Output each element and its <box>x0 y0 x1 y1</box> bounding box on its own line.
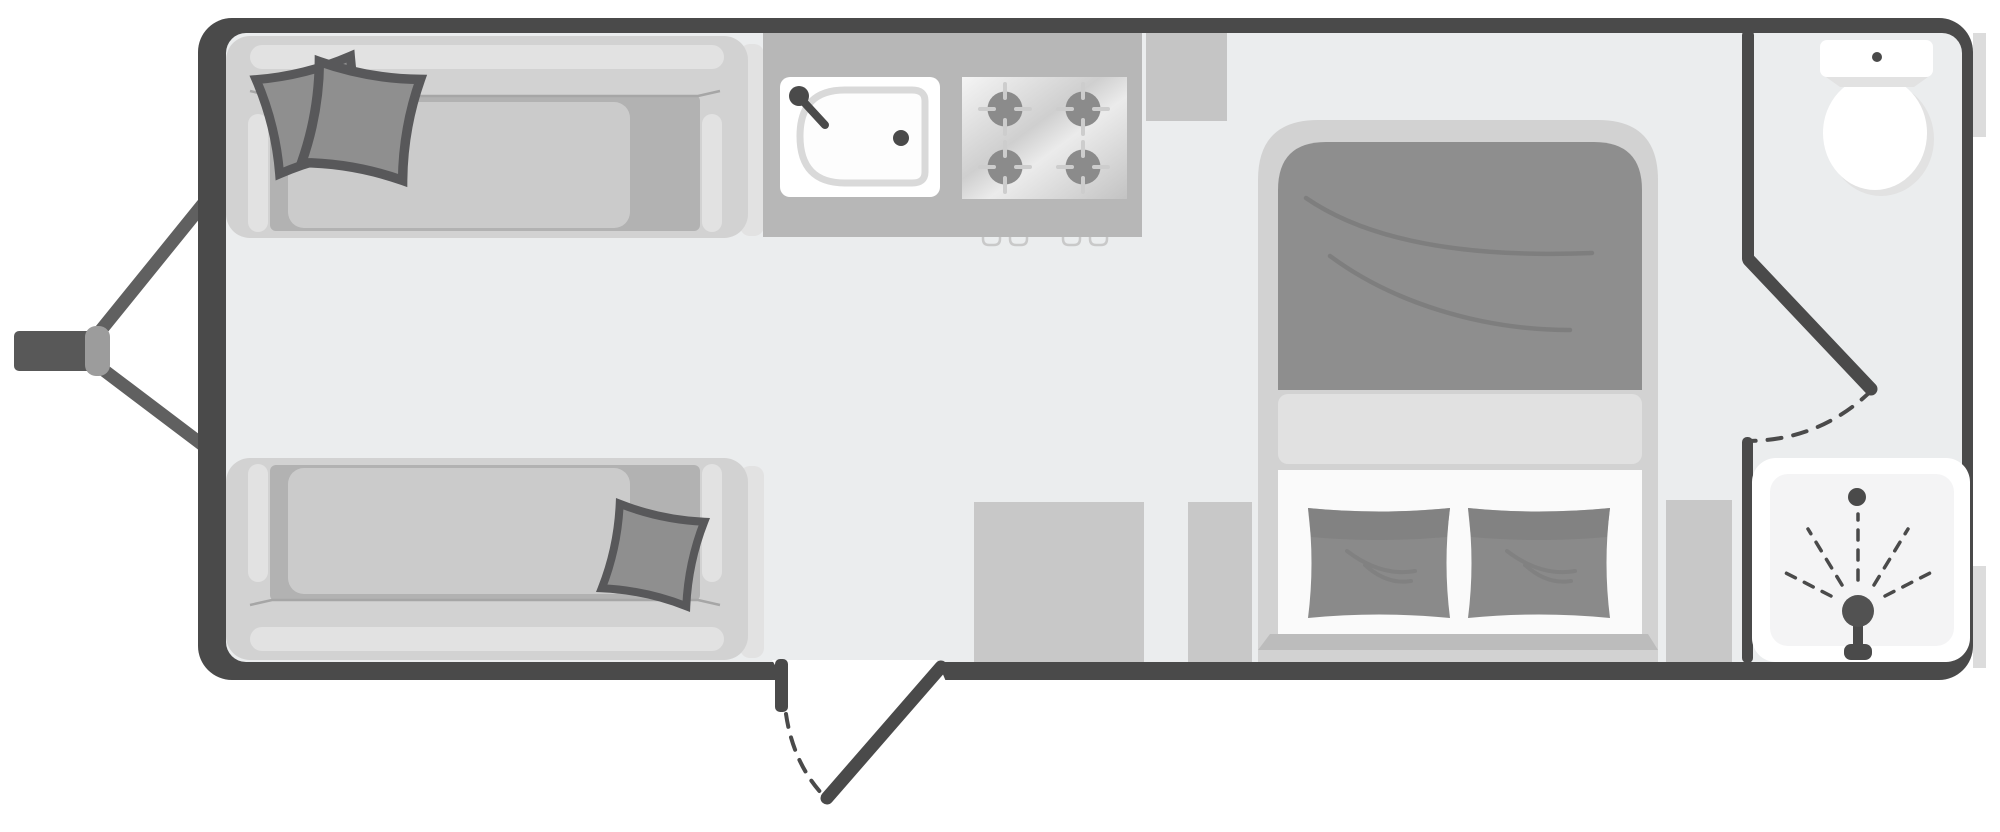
sofa-seat-cushion <box>288 468 630 594</box>
cistern-shadow <box>1826 77 1928 87</box>
partition-wall-upper <box>1742 30 1754 264</box>
drain-icon <box>893 130 909 146</box>
drawbar-hitch <box>14 193 212 452</box>
exterior-trim-top <box>1973 33 1986 137</box>
bed-duvet <box>1278 142 1642 390</box>
exterior-trim-bottom <box>1973 566 1986 668</box>
flush-button-icon <box>1872 52 1882 62</box>
storage-unit <box>1188 502 1252 662</box>
entry-door-opening <box>772 659 947 798</box>
sofa-offside <box>226 458 764 660</box>
drawbar-arm-lower <box>93 362 212 452</box>
hitch-coupler <box>85 326 110 376</box>
bed-foot-band <box>1258 634 1658 650</box>
shower-mount <box>1844 644 1872 660</box>
hob-panel <box>962 77 1127 199</box>
sofa-nearside <box>226 36 764 238</box>
scatter-cushion <box>302 62 421 181</box>
caravan-floorplan <box>0 0 2000 832</box>
shower-head-icon <box>1842 595 1874 627</box>
shower <box>1752 458 1970 662</box>
shower-drain-icon <box>1848 488 1866 506</box>
sofa-backrest <box>250 627 724 651</box>
entry-door <box>827 667 941 798</box>
hob <box>962 77 1127 199</box>
sofa-armrest-right <box>702 114 722 232</box>
kitchen-sink <box>780 77 940 197</box>
sofa-armrest-left <box>248 114 268 232</box>
bed-sheet-band <box>1278 394 1642 464</box>
toilet-bowl <box>1823 76 1927 190</box>
door-jamb-stub <box>775 659 788 712</box>
wardrobe-cabinet <box>1666 500 1732 662</box>
kitchen-worktop-extension <box>1146 33 1227 121</box>
bed-pillow <box>1308 508 1450 618</box>
scatter-cushion <box>602 504 704 606</box>
bed-pillow <box>1468 508 1610 618</box>
worktop-seam <box>1142 33 1146 237</box>
island-bed <box>1258 120 1658 662</box>
entry-door-swing-arc <box>786 714 822 794</box>
drawbar-arm-upper <box>93 193 212 340</box>
sofa-armrest-left <box>248 464 268 582</box>
partition-wall-lower <box>1742 437 1753 663</box>
storage-unit <box>974 502 1144 662</box>
